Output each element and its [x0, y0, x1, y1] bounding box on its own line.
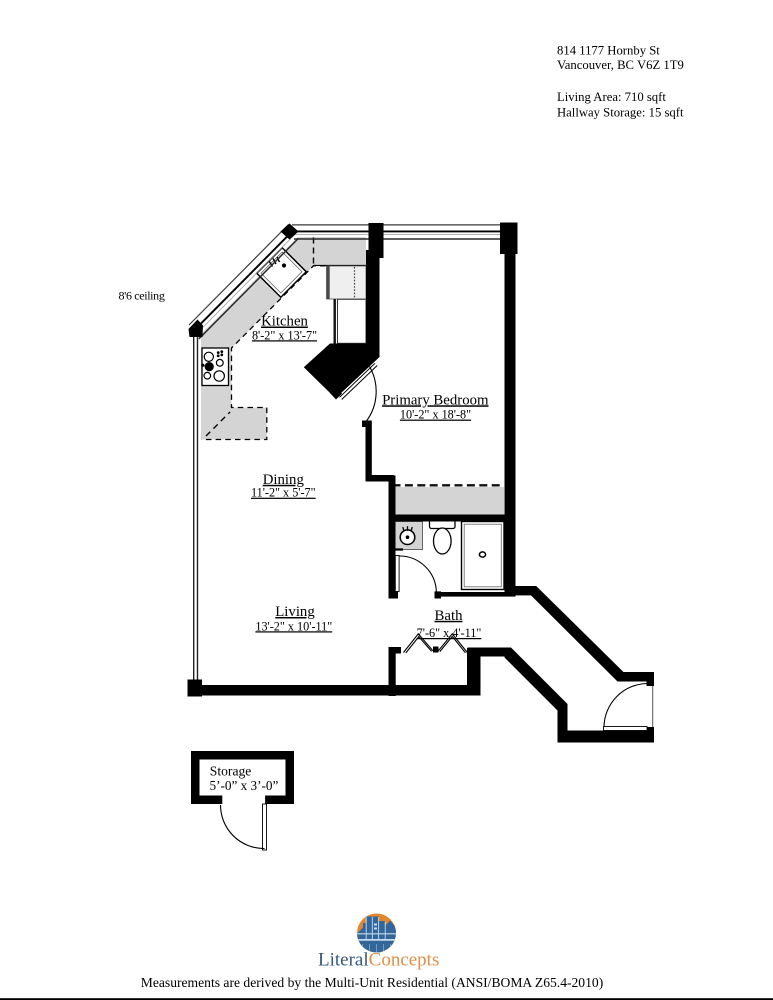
svg-text:8'-2" x 13'-7": 8'-2" x 13'-7" — [252, 328, 317, 342]
svg-text:5’-0” x 3’-0”: 5’-0” x 3’-0” — [210, 778, 279, 793]
svg-text:Kitchen: Kitchen — [261, 314, 308, 330]
svg-text:Vancouver, BC V6Z 1T9: Vancouver, BC V6Z 1T9 — [557, 58, 684, 72]
svg-text:Hallway Storage: 15 sqft: Hallway Storage: 15 sqft — [557, 106, 684, 120]
svg-text:13'-2" x 10'-11": 13'-2" x 10'-11" — [255, 619, 332, 633]
svg-text:LiteralConcepts: LiteralConcepts — [318, 950, 439, 971]
svg-text:Storage: Storage — [210, 763, 252, 778]
svg-text:11'-2" x 5'-7": 11'-2" x 5'-7" — [251, 486, 316, 500]
svg-text:Bath: Bath — [435, 608, 464, 624]
svg-text:8'6 ceiling: 8'6 ceiling — [119, 289, 165, 303]
svg-text:814 1177 Hornby St: 814 1177 Hornby St — [557, 44, 660, 58]
svg-text:10'-2" x 18'-8": 10'-2" x 18'-8" — [400, 408, 471, 422]
svg-text:Living Area: 710 sqft: Living Area: 710 sqft — [557, 90, 666, 104]
svg-text:Measurements are derived by th: Measurements are derived by the Multi-Un… — [141, 975, 603, 991]
svg-text:7'-6" x 4'-11": 7'-6" x 4'-11" — [417, 626, 482, 640]
svg-text:Primary Bedroom: Primary Bedroom — [382, 392, 489, 408]
svg-text:Living: Living — [275, 604, 315, 620]
